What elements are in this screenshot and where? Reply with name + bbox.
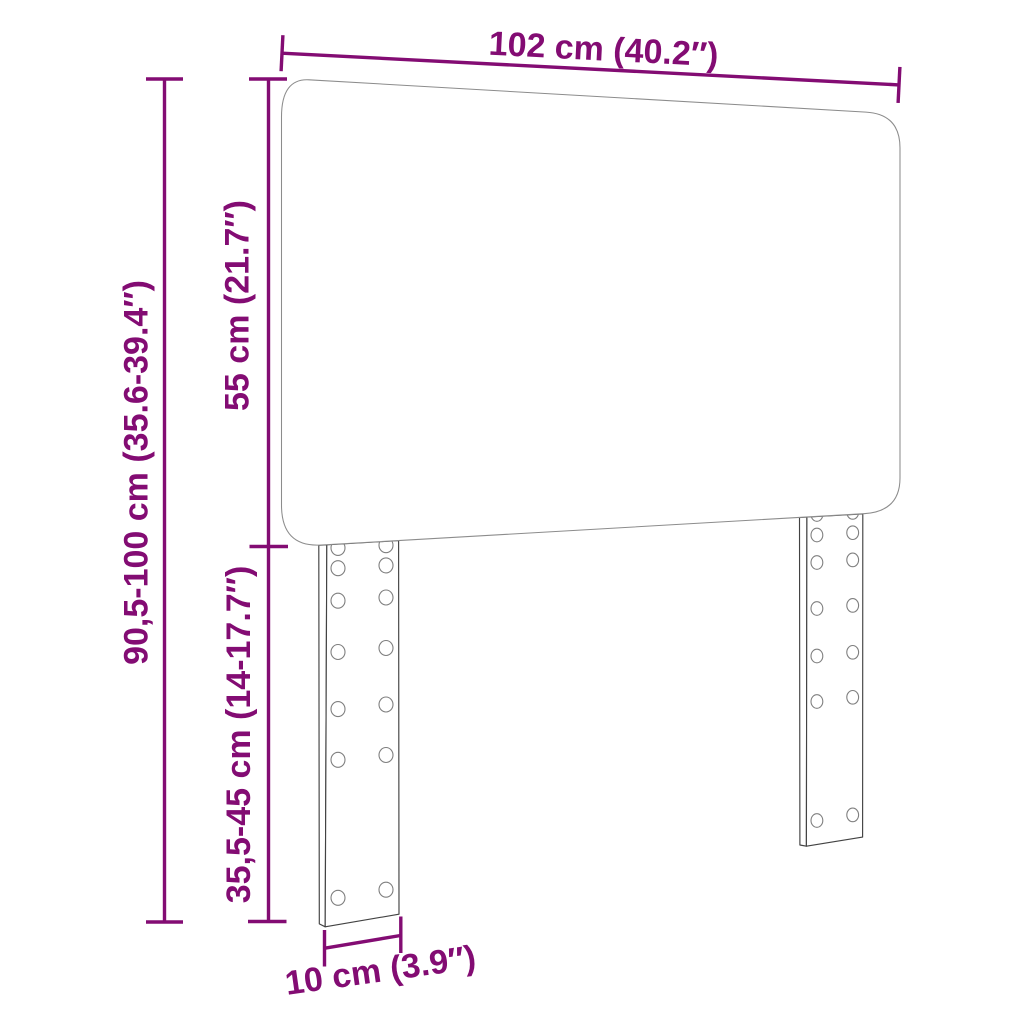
svg-text:35,5-45 cm (14-17.7″): 35,5-45 cm (14-17.7″) <box>220 566 258 904</box>
svg-text:90,5-100 cm (35.6-39.4″): 90,5-100 cm (35.6-39.4″) <box>118 280 156 665</box>
svg-text:55 cm (21.7″): 55 cm (21.7″) <box>219 200 257 411</box>
